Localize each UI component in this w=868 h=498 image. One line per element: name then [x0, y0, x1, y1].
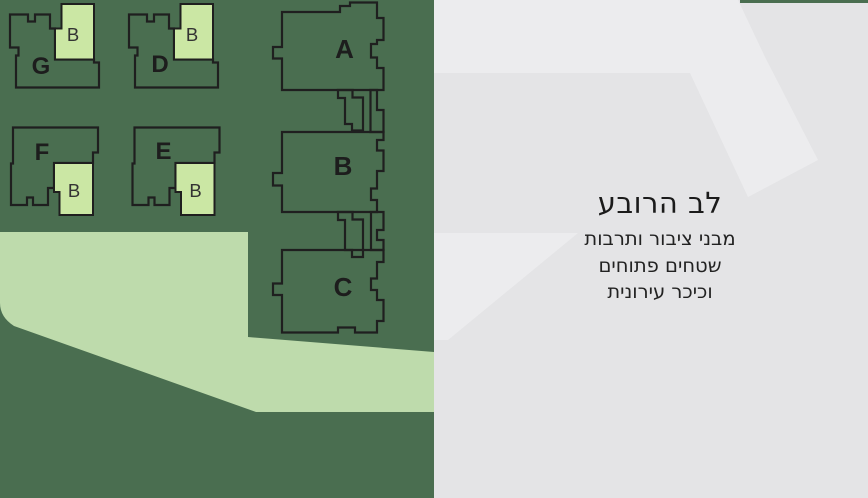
annex-b-label-g: B: [67, 24, 79, 45]
quarter-title: לב הרובע: [476, 187, 844, 220]
building-d-label[interactable]: D: [151, 51, 168, 78]
site-plan-page: G D F E A B C B B B B לב הרובע מבני ציבו…: [0, 0, 868, 498]
building-a-label[interactable]: A: [335, 34, 354, 64]
quarter-subtitle-line-1: מבני ציבור ותרבות: [476, 226, 844, 253]
decor-shape-top: [434, 0, 818, 197]
annex-b-label-d: B: [186, 24, 198, 45]
quarter-subtitle-line-3: וכיכר עירונית: [476, 279, 844, 306]
building-g-label[interactable]: G: [32, 53, 51, 80]
quarter-subtitle: מבני ציבור ותרבות שטחים פתוחים וכיכר עיר…: [476, 226, 844, 306]
building-e-label[interactable]: E: [155, 138, 171, 165]
quarter-info: לב הרובע מבני ציבור ותרבות שטחים פתוחים …: [476, 187, 844, 306]
site-plan-map: G D F E A B C B B B B: [0, 0, 434, 498]
annex-b-label-e: B: [189, 180, 201, 201]
building-b-label[interactable]: B: [334, 151, 353, 181]
info-panel: לב הרובע מבני ציבור ותרבות שטחים פתוחים …: [434, 0, 868, 498]
annex-b-label-f: B: [68, 180, 80, 201]
quarter-subtitle-line-2: שטחים פתוחים: [476, 253, 844, 280]
building-c-label[interactable]: C: [334, 272, 353, 302]
building-f-label[interactable]: F: [35, 139, 50, 166]
